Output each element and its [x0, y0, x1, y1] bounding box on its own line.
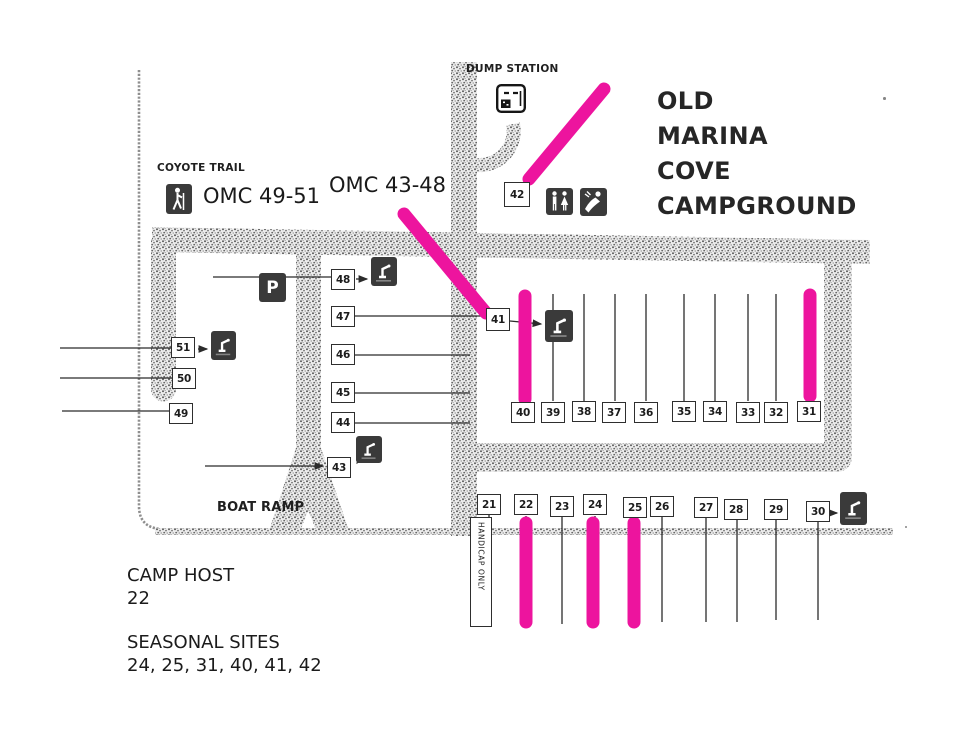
site-box-36: 36 [634, 402, 658, 423]
site-box-46: 46 [331, 344, 355, 365]
site-box-28: 28 [724, 499, 748, 520]
dump-station-label: DUMP STATION [466, 63, 559, 75]
site-box-40: 40 [511, 402, 535, 423]
camp-host-label: CAMP HOST [127, 564, 234, 587]
site-box-43: 43 [327, 457, 351, 478]
hiker-icon [166, 184, 192, 214]
road-loop-right [452, 262, 852, 472]
site-box-39: 39 [541, 402, 565, 423]
site-box-33: 33 [736, 402, 760, 423]
road-middle-vertical [296, 250, 321, 462]
water-spigot-icon [356, 436, 382, 463]
site-box-27: 27 [694, 497, 718, 518]
site-box-21: 21 [477, 494, 501, 515]
road-top [152, 227, 870, 264]
site-box-47: 47 [331, 306, 355, 327]
title-line-4: CAMPGROUND [657, 189, 857, 224]
seasonal-sites-label: SEASONAL SITES [127, 631, 322, 654]
site-box-35: 35 [672, 401, 696, 422]
site-box-24: 24 [583, 494, 607, 515]
highlight-site-42 [529, 89, 604, 179]
site-box-45: 45 [331, 382, 355, 403]
scan-speck [883, 97, 886, 100]
site-box-31: 31 [797, 401, 821, 422]
handicap-only-stall: HANDICAP ONLY [470, 517, 492, 627]
site-box-41: 41 [486, 308, 510, 331]
title-line-1: OLD [657, 84, 857, 119]
site-box-42: 42 [504, 182, 530, 207]
camp-host-value: 22 [127, 587, 234, 610]
site-box-25: 25 [623, 497, 647, 518]
dump-station-icon [496, 84, 526, 113]
campground-map: DUMP STATION COYOTE TRAIL OMC 49-51 OMC … [0, 0, 960, 741]
scan-speck [905, 526, 907, 528]
site-box-50: 50 [172, 368, 196, 389]
site-box-38: 38 [572, 401, 596, 422]
water-spigot-icon [211, 331, 236, 360]
site-box-44: 44 [331, 412, 355, 433]
site-box-32: 32 [764, 402, 788, 423]
site-box-51: 51 [171, 337, 195, 358]
omc-43-48-label: OMC 43-48 [329, 173, 446, 197]
title-line-2: MARINA [657, 119, 857, 154]
road-dump-loop [477, 124, 514, 165]
shower-icon [580, 188, 607, 216]
site-box-23: 23 [550, 496, 574, 517]
site-box-22: 22 [514, 494, 538, 515]
site-box-49: 49 [169, 403, 193, 424]
site-box-30: 30 [806, 501, 830, 522]
water-spigot-icon [371, 257, 397, 286]
map-title: OLD MARINA COVE CAMPGROUND [657, 84, 857, 224]
site-box-29: 29 [764, 499, 788, 520]
omc-49-51-label: OMC 49-51 [203, 184, 320, 208]
site-box-37: 37 [602, 402, 626, 423]
coyote-trail-label: COYOTE TRAIL [157, 162, 245, 174]
water-spigot-icon [545, 310, 573, 342]
site-box-34: 34 [703, 401, 727, 422]
site-box-26: 26 [650, 496, 674, 517]
site-box-48: 48 [331, 269, 355, 290]
water-spigot-icon [840, 492, 867, 525]
parking-icon: P [259, 273, 286, 302]
boat-ramp-label: BOAT RAMP [217, 500, 304, 515]
title-line-3: COVE [657, 154, 857, 189]
seasonal-sites-note: SEASONAL SITES 24, 25, 31, 40, 41, 42 [127, 631, 322, 677]
restroom-icon [546, 188, 573, 215]
seasonal-sites-value: 24, 25, 31, 40, 41, 42 [127, 654, 322, 677]
camp-host-note: CAMP HOST 22 [127, 564, 234, 610]
